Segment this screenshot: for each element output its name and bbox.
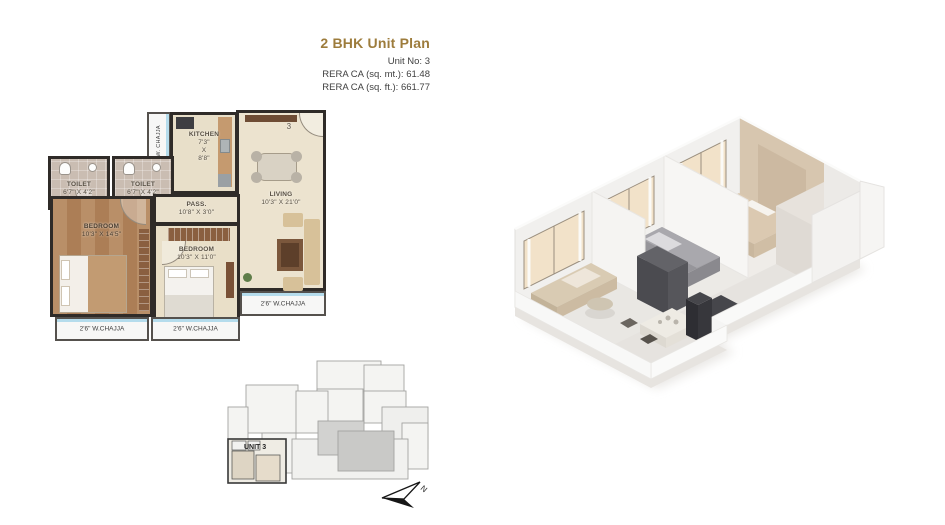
brochure-page: 2 BHK Unit Plan Unit No: 3 RERA CA (sq. …: [0, 0, 945, 525]
coffee-table-3d: [587, 298, 613, 311]
right-wing-wall: [860, 181, 884, 259]
graphics-layer: UNIT 3 N: [0, 0, 945, 525]
north-label: N: [419, 484, 429, 495]
entrance-block: [686, 292, 712, 341]
north-arrow-lower-blade: [382, 498, 414, 508]
isometric-3d-view: [515, 117, 884, 389]
key-plan-unit-highlight: UNIT 3: [228, 439, 286, 483]
key-plan: UNIT 3: [228, 361, 428, 483]
north-arrow: N: [382, 482, 429, 508]
key-plan-unit-label: UNIT 3: [244, 444, 266, 451]
north-arrow-upper-blade: [382, 482, 420, 499]
